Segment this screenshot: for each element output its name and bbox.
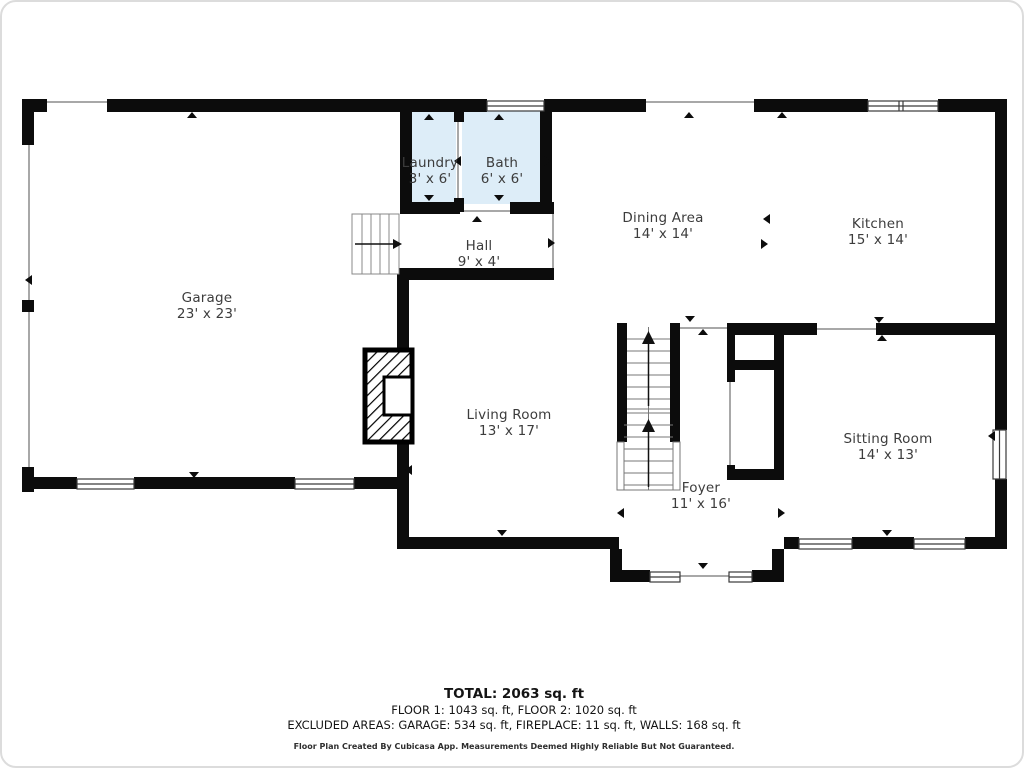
room-label-laundry: Laundry 3' x 6' [402,155,458,187]
stair-up-arrow [642,331,655,344]
room-name: Kitchen [848,216,908,232]
room-label-kitchen: Kitchen 15' x 14' [848,216,908,248]
room-name: Living Room [466,407,551,423]
room-dims: 14' x 13' [844,447,933,463]
room-dims: 13' x 17' [466,423,551,439]
room-name: Sitting Room [844,431,933,447]
floorplan-drawing [2,2,1024,768]
room-label-foyer: Foyer 11' x 16' [671,480,731,512]
room-name: Bath [481,155,524,171]
room-label-sitting-room: Sitting Room 14' x 13' [844,431,933,463]
fireplace-firebox [384,377,412,415]
room-name: Dining Area [622,210,703,226]
room-label-dining-area: Dining Area 14' x 14' [622,210,703,242]
app-credit-text: Floor Plan Created By Cubicasa App. Meas… [2,742,1024,751]
area-summary: TOTAL: 2063 sq. ft FLOOR 1: 1043 sq. ft,… [2,686,1024,751]
room-label-bath: Bath 6' x 6' [481,155,524,187]
room-name: Garage [177,290,237,306]
room-dims: 3' x 6' [402,171,458,187]
room-dims: 6' x 6' [481,171,524,187]
floorplan-page: Laundry 3' x 6' Bath 6' x 6' Dining Area… [0,0,1024,768]
room-label-living-room: Living Room 13' x 17' [466,407,551,439]
room-name: Foyer [671,480,731,496]
room-dims: 14' x 14' [622,226,703,242]
total-area-text: TOTAL: 2063 sq. ft [2,686,1024,703]
room-label-garage: Garage 23' x 23' [177,290,237,322]
room-dims: 9' x 4' [458,254,501,270]
room-name: Laundry [402,155,458,171]
room-dims: 11' x 16' [671,496,731,512]
room-dims: 15' x 14' [848,232,908,248]
garage-stairs [352,214,402,274]
floor-areas-text: FLOOR 1: 1043 sq. ft, FLOOR 2: 1020 sq. … [2,703,1024,718]
excluded-areas-text: EXCLUDED AREAS: GARAGE: 534 sq. ft, FIRE… [2,718,1024,733]
room-name: Hall [458,238,501,254]
fireplace [365,350,412,442]
room-label-hall: Hall 9' x 4' [458,238,501,270]
room-dims: 23' x 23' [177,306,237,322]
